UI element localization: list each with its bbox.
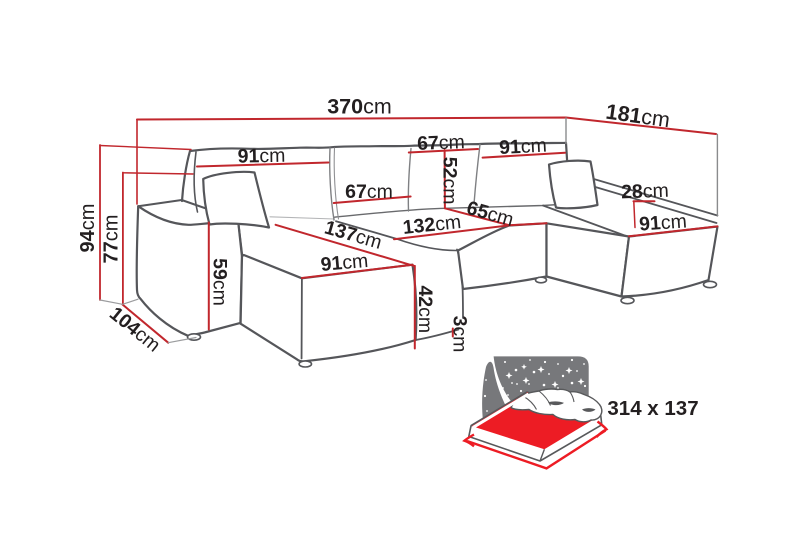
svg-text:59cm: 59cm	[209, 258, 231, 306]
svg-text:91cm: 91cm	[320, 250, 369, 276]
svg-text:67cm: 67cm	[417, 131, 465, 155]
svg-text:91cm: 91cm	[638, 210, 687, 235]
svg-text:91cm: 91cm	[237, 145, 285, 168]
svg-text:370cm: 370cm	[327, 95, 392, 119]
svg-text:52cm: 52cm	[438, 157, 460, 205]
svg-text:3cm: 3cm	[449, 316, 471, 353]
svg-text:314 x 137: 314 x 137	[607, 397, 698, 420]
svg-text:94cm: 94cm	[77, 204, 99, 253]
svg-text:77cm: 77cm	[101, 215, 123, 264]
svg-text:28cm: 28cm	[621, 180, 669, 204]
svg-text:42cm: 42cm	[414, 285, 436, 333]
svg-text:67cm: 67cm	[345, 181, 393, 203]
svg-text:91cm: 91cm	[499, 135, 548, 159]
